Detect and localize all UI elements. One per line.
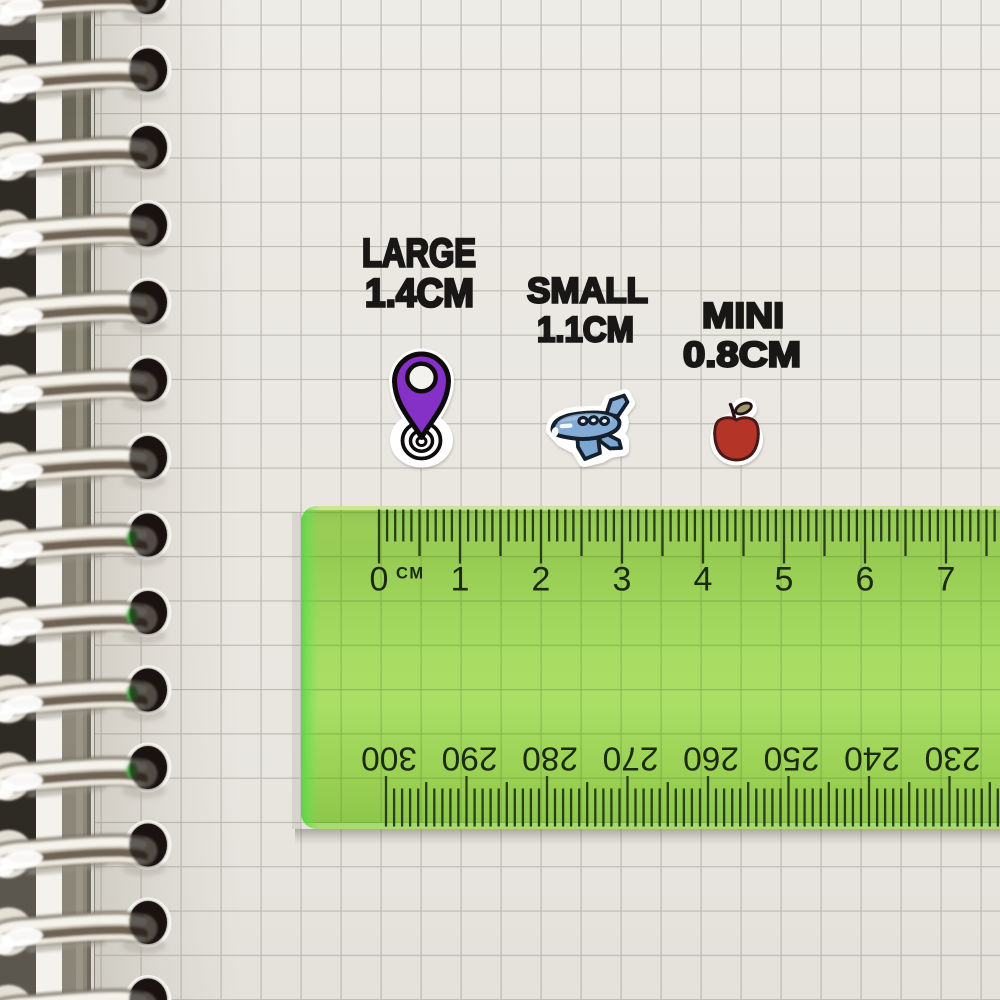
svg-text:280: 280 <box>522 740 578 777</box>
svg-text:1.4CM: 1.4CM <box>365 272 474 316</box>
svg-text:270: 270 <box>603 740 659 777</box>
svg-text:7: 7 <box>937 561 956 599</box>
svg-text:1.1CM: 1.1CM <box>537 311 634 350</box>
svg-text:2: 2 <box>532 561 551 599</box>
svg-text:LARGE: LARGE <box>362 232 476 276</box>
svg-text:260: 260 <box>683 740 739 777</box>
svg-text:0.8CM: 0.8CM <box>683 336 801 375</box>
svg-text:5: 5 <box>775 561 794 599</box>
svg-text:230: 230 <box>925 740 981 777</box>
svg-text:MINI: MINI <box>702 297 784 336</box>
svg-text:4: 4 <box>694 561 713 599</box>
svg-text:0: 0 <box>370 561 389 599</box>
svg-text:290: 290 <box>442 740 498 777</box>
svg-text:240: 240 <box>844 740 900 777</box>
svg-text:300: 300 <box>361 740 417 777</box>
svg-text:6: 6 <box>856 561 875 599</box>
svg-text:3: 3 <box>613 561 632 599</box>
svg-text:SMALL: SMALL <box>527 272 648 311</box>
svg-text:1: 1 <box>451 561 470 599</box>
svg-text:CM: CM <box>396 565 425 583</box>
svg-text:250: 250 <box>764 740 820 777</box>
